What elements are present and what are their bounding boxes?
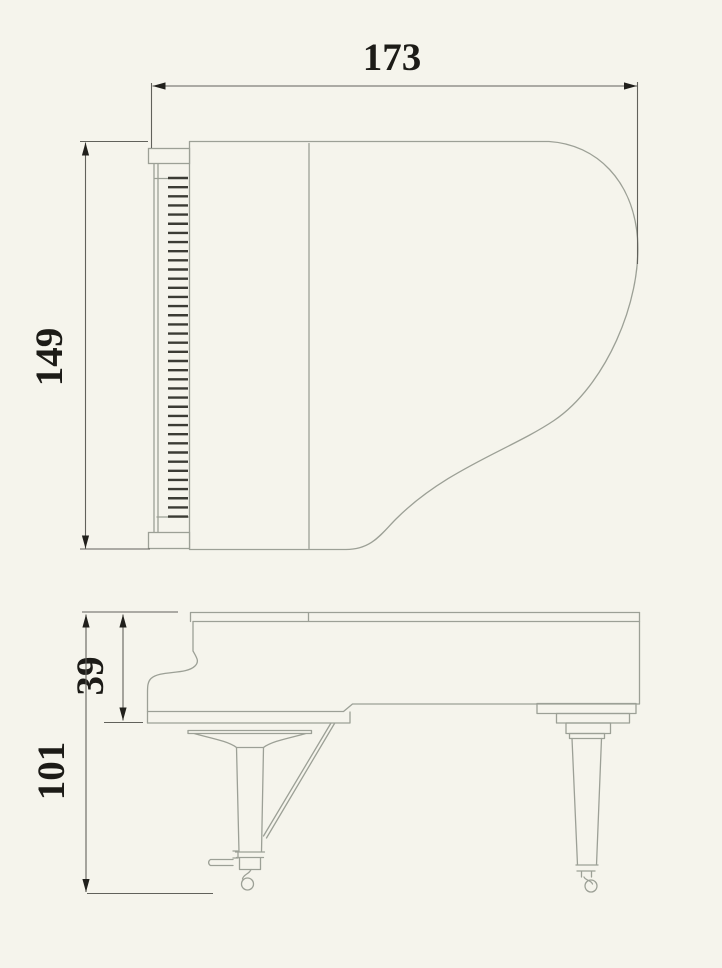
dimension-width-label: 173 [363, 36, 422, 79]
pedal-lyre [209, 723, 335, 866]
side-view-lid [191, 613, 640, 622]
piano-side-view [148, 613, 640, 893]
dimension-depth-label: 149 [28, 328, 71, 387]
rear-leg-block-3 [566, 723, 611, 734]
dim-arrow-up [82, 615, 89, 628]
dimension-total-height: 101 [30, 612, 213, 894]
front-leg [188, 731, 312, 891]
pedal [209, 860, 233, 866]
dimension-case-height: 39 [69, 615, 143, 723]
piano-keys [168, 178, 188, 517]
lyre-brace-rod [264, 723, 335, 838]
top-view-cheek-block-bottom [149, 533, 190, 549]
top-view-key-end-ticks [155, 179, 189, 518]
dimension-top-depth: 149 [28, 142, 150, 550]
front-leg-capital [188, 731, 312, 748]
dim-149-extension-lines [80, 142, 150, 550]
dim-arrow-down [82, 536, 89, 549]
dim-arrow-right [624, 82, 637, 89]
dim-arrow-left [153, 82, 166, 89]
rear-leg [537, 704, 636, 893]
dimension-total-height-label: 101 [30, 742, 73, 801]
drawing-svg: 173 149 39 101 [0, 0, 722, 968]
dim-arrow-down [119, 708, 126, 721]
top-view-body-outline [190, 142, 638, 550]
side-view-case-bottom [148, 613, 640, 724]
dim-arrow-up [119, 615, 126, 628]
top-view-keyslip [154, 164, 158, 533]
dimension-case-height-label: 39 [69, 657, 112, 696]
dim-arrow-up [82, 143, 89, 156]
dimension-top-width: 173 [152, 36, 638, 264]
rear-leg-block-2 [557, 714, 630, 724]
side-view-front-profile [148, 622, 198, 724]
piano-dimension-drawing: 173 149 39 101 [0, 0, 722, 968]
dim-101-extension-lines [82, 612, 213, 894]
piano-top-view [149, 142, 638, 550]
top-view-cheek-block-top [149, 149, 190, 164]
front-leg-shaft [236, 748, 265, 870]
front-caster-wheel [242, 878, 254, 890]
dim-173-extension-lines [152, 82, 638, 264]
rear-leg-block-1 [537, 704, 636, 714]
rear-leg-shaft [572, 739, 602, 878]
rear-leg-collar [570, 734, 605, 739]
dim-arrow-down [82, 879, 89, 892]
